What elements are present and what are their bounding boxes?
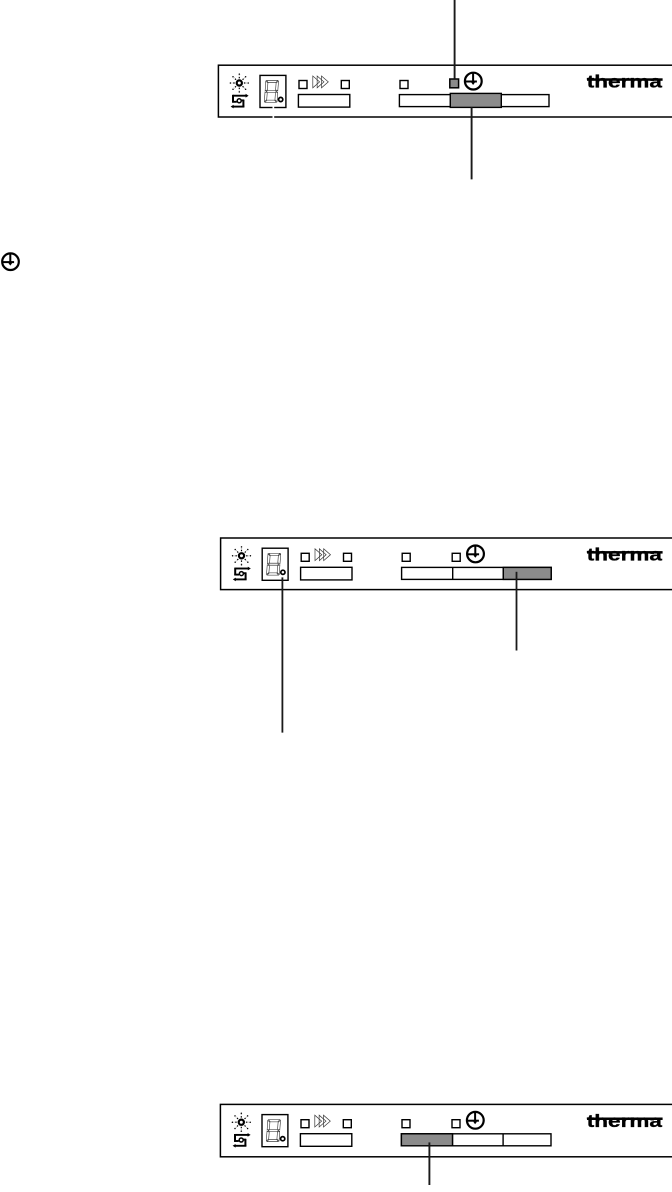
svg-text:therma: therma bbox=[587, 546, 663, 565]
svg-text:therma: therma bbox=[587, 73, 663, 92]
svg-text:therma: therma bbox=[587, 1112, 663, 1131]
